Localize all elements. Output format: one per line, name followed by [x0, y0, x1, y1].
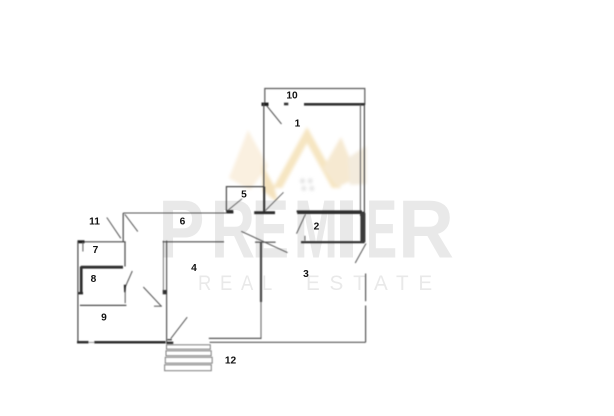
- svg-text:2: 2: [314, 222, 320, 233]
- svg-text:E: E: [252, 183, 289, 276]
- svg-text:P: P: [159, 183, 205, 276]
- svg-text:E: E: [366, 183, 397, 276]
- svg-text:9: 9: [101, 313, 107, 324]
- svg-text:5: 5: [241, 190, 247, 201]
- svg-text:6: 6: [180, 217, 186, 228]
- svg-text:3: 3: [303, 269, 309, 280]
- svg-text:1: 1: [295, 119, 301, 130]
- svg-text:10: 10: [286, 91, 298, 102]
- svg-text:REAL: REAL: [198, 272, 281, 295]
- svg-text:11: 11: [89, 217, 100, 228]
- svg-text:4: 4: [191, 263, 197, 274]
- svg-text:R: R: [211, 183, 255, 276]
- svg-text:12: 12: [225, 356, 237, 367]
- svg-text:7: 7: [93, 245, 99, 256]
- svg-text:ESTATE: ESTATE: [306, 272, 442, 295]
- svg-text:R: R: [398, 183, 454, 276]
- svg-text:8: 8: [91, 274, 97, 285]
